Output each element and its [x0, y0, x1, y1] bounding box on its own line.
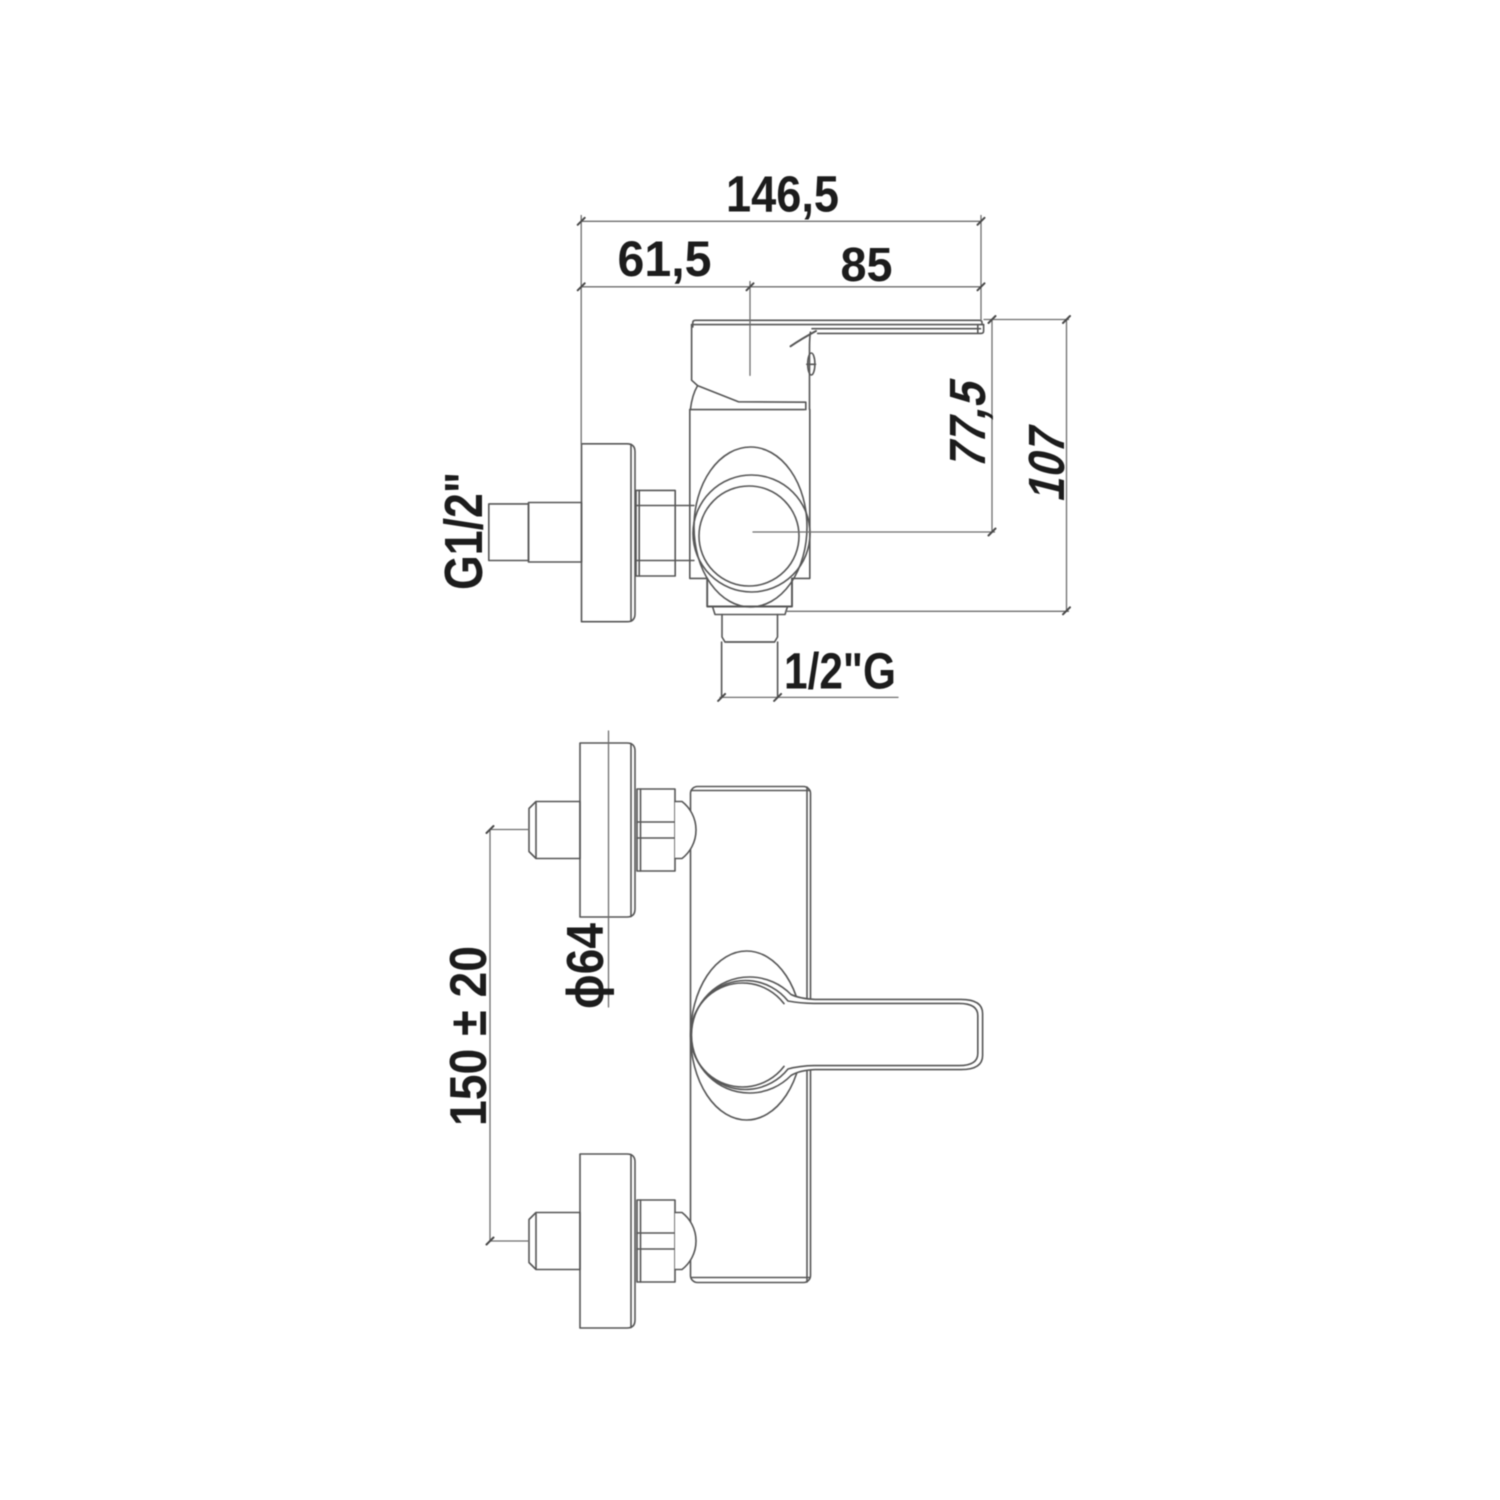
svg-text:150 ± 20: 150 ± 20: [440, 946, 498, 1126]
svg-text:85: 85: [841, 239, 893, 292]
svg-text:146,5: 146,5: [726, 166, 839, 223]
svg-text:107: 107: [1018, 419, 1075, 505]
svg-text:61,5: 61,5: [618, 231, 712, 287]
svg-text:1/2"G: 1/2"G: [784, 643, 896, 700]
svg-text:77,5: 77,5: [939, 372, 996, 472]
svg-text:ϕ64: ϕ64: [557, 923, 615, 1009]
svg-text:G1/2": G1/2": [434, 472, 494, 590]
